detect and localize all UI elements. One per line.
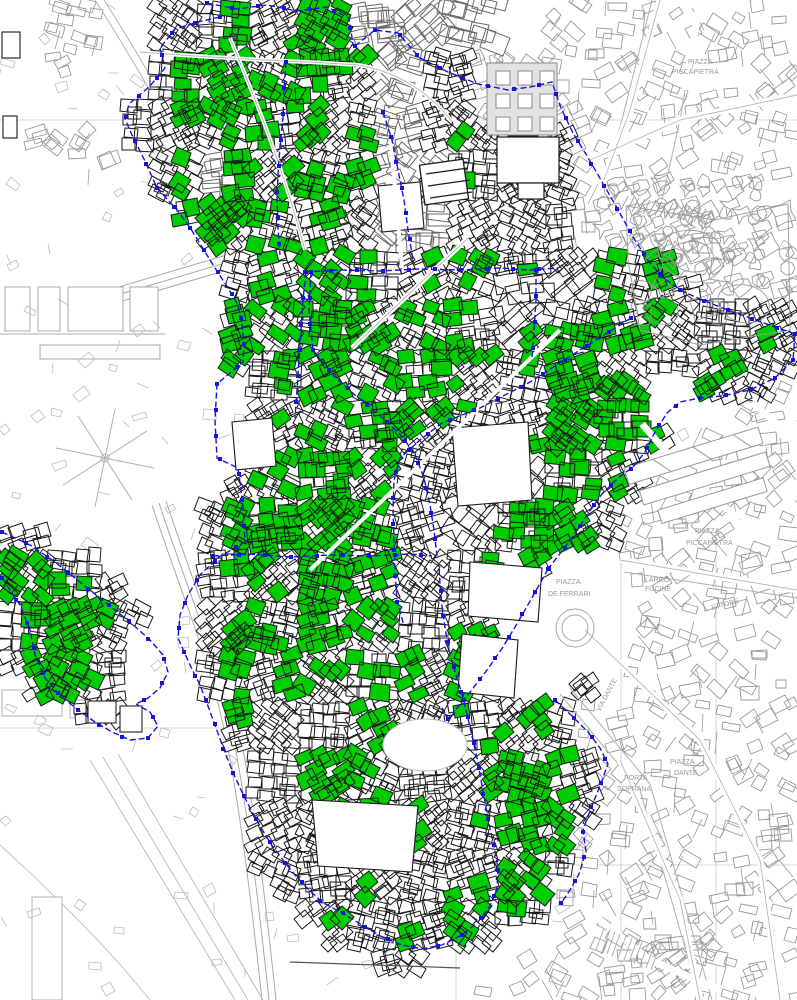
svg-text:LARGO: LARGO [645, 577, 670, 584]
svg-text:PIAZZA: PIAZZA [556, 579, 581, 586]
svg-text:PIAZZA: PIAZZA [670, 759, 695, 766]
svg-text:DE FERRARI: DE FERRARI [548, 591, 590, 598]
svg-text:PIAZZA: PIAZZA [695, 528, 720, 535]
svg-text:PICCAPIETRA: PICCAPIETRA [672, 69, 719, 76]
svg-text:PORTA: PORTA [624, 775, 648, 782]
svg-text:DANTE: DANTE [674, 770, 698, 777]
svg-text:PICCAPIETRA: PICCAPIETRA [686, 540, 733, 547]
svg-text:PIAZZA: PIAZZA [688, 59, 713, 66]
svg-text:SOPRANA: SOPRANA [617, 786, 652, 793]
svg-text:FUCINE: FUCINE [645, 586, 671, 593]
